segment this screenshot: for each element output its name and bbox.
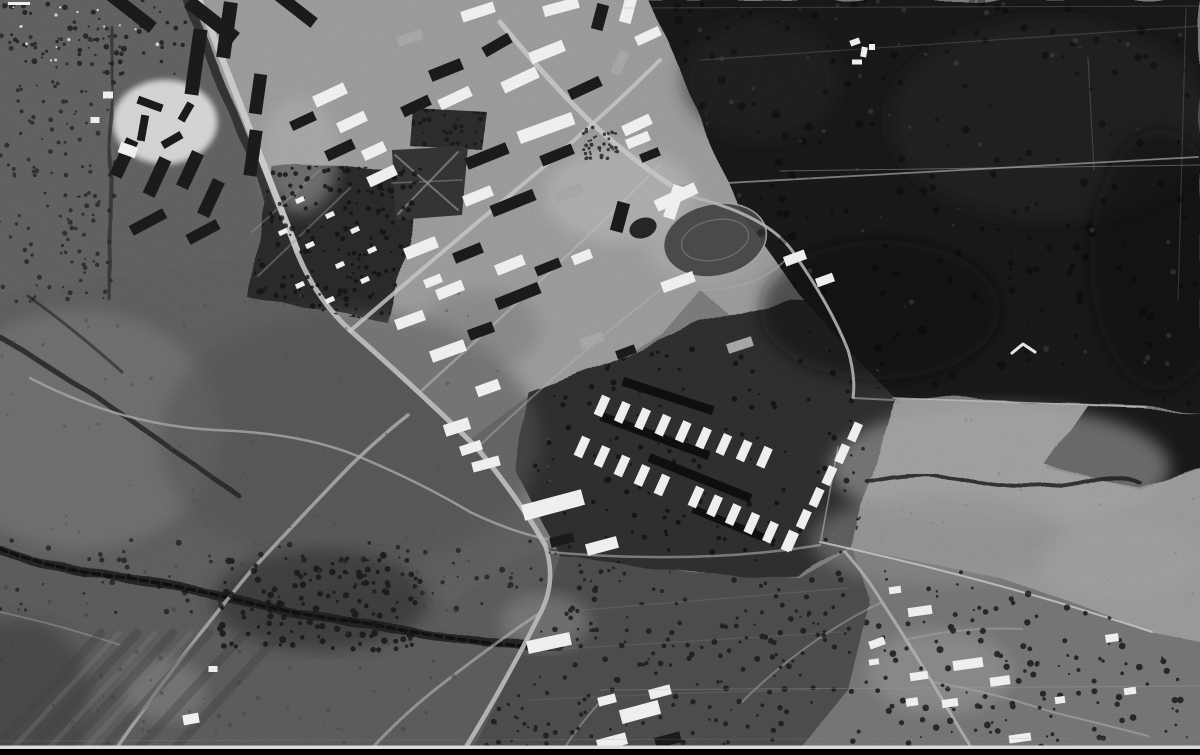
aerial-photograph [0, 0, 1200, 755]
frame-bottom-bar [0, 749, 1200, 755]
aerial-photo-canvas [0, 0, 1200, 755]
frame-bottom-line [0, 746, 1200, 750]
film-grain-overlay [0, 0, 1200, 755]
frame-registration-dash [8, 2, 30, 5]
